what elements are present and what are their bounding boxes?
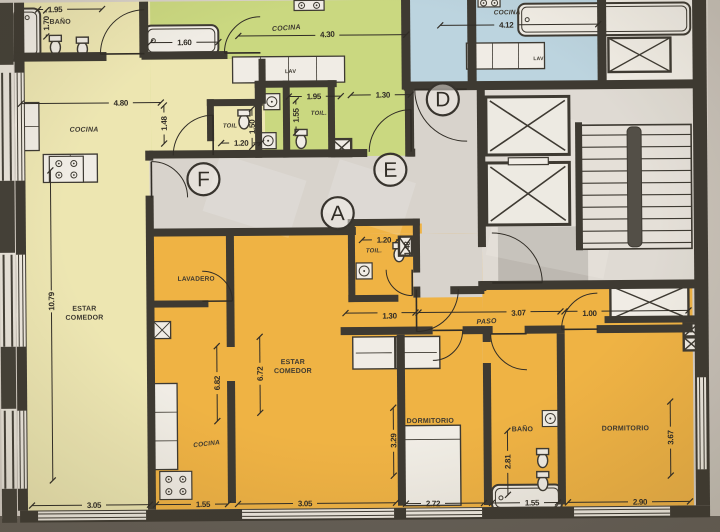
window (16, 255, 26, 347)
balcony-wall-bar (1, 347, 16, 409)
room-label: ESTAR (72, 306, 96, 313)
dimension-label: 1.20 (234, 139, 249, 148)
plan-sheet: 1.951.701.604.801.484.301.951.551.501.20… (0, 0, 710, 523)
stair-stringer (627, 127, 642, 247)
washbasin-drain (267, 140, 269, 142)
dimension-label: 2.90 (633, 498, 648, 507)
wall (328, 80, 336, 157)
wall (575, 122, 583, 250)
wall (597, 324, 693, 333)
burner-dot (316, 4, 318, 6)
toilet (296, 134, 306, 148)
wall (480, 279, 696, 290)
window (17, 411, 27, 489)
wall (597, 0, 607, 84)
wall (255, 81, 263, 158)
burner-dot (168, 478, 170, 480)
wall (348, 295, 398, 302)
burner-dot (58, 163, 60, 165)
wall (12, 52, 106, 62)
room-label: DORMITORIO (407, 418, 455, 425)
dimension-label: 3.29 (389, 433, 398, 448)
toilet (50, 40, 60, 54)
room-label: TOIL (223, 123, 238, 129)
dim-line (601, 310, 688, 311)
kitchen-counter (153, 383, 178, 469)
balcony-wall-bar (0, 3, 14, 65)
burner-dot (168, 491, 170, 493)
window (38, 511, 146, 521)
wall (141, 51, 227, 60)
burner-dot (73, 163, 75, 165)
toilet-tank (238, 110, 250, 116)
window-mullion (20, 411, 21, 489)
floor-plan: 1.951.701.604.801.484.301.951.551.501.20… (0, 0, 720, 532)
bidet (538, 477, 548, 491)
dimension-label: 1.55 (525, 498, 540, 507)
wall (557, 333, 566, 504)
dim-line (21, 103, 109, 104)
floorplan-photo: 1.951.701.604.801.484.301.951.551.501.20… (0, 0, 720, 532)
wall (463, 326, 493, 334)
dim-line (518, 24, 598, 25)
wall (397, 335, 406, 506)
room-label: COCINA (494, 9, 521, 16)
unit-f-main (16, 2, 154, 511)
stove-burners-icon (160, 471, 192, 499)
balcony-rail (10, 73, 11, 181)
wall (348, 219, 420, 227)
wall (152, 300, 208, 307)
bed (404, 425, 461, 505)
burner-dot (58, 174, 60, 176)
room-label: TOIL. (311, 111, 327, 117)
burner-dot (73, 174, 75, 176)
wall (341, 326, 433, 335)
burner-dot (301, 5, 303, 7)
stove-burners-icon (49, 156, 83, 182)
wall (483, 334, 491, 342)
dimension-label: 4.12 (499, 21, 514, 30)
unit-letter-E: E (383, 159, 397, 182)
unit-letter-A: A (331, 202, 345, 225)
wall (207, 99, 263, 106)
wall (483, 363, 492, 505)
dimension-label: 6.72 (256, 366, 265, 381)
washbasin-drain (363, 270, 365, 272)
elevator-door (508, 158, 548, 165)
toilet (538, 454, 548, 468)
dimension-label: 1.30 (376, 91, 391, 100)
dimension-label: 1.55 (196, 500, 211, 509)
dimension-label: 1.95 (48, 5, 63, 14)
wall (401, 0, 411, 90)
wall (255, 80, 337, 88)
balcony-rail (2, 73, 3, 181)
dim-line (238, 35, 315, 36)
dimension-label: 1.95 (307, 92, 322, 101)
wall (467, 0, 477, 85)
washbasin-drain (549, 418, 551, 420)
paper-edge-right (708, 0, 720, 532)
bidet-tank (537, 472, 549, 478)
wall (227, 381, 236, 503)
balcony-rail (13, 411, 14, 489)
room-label: LAV (533, 56, 544, 62)
dimension-label: 3.05 (87, 501, 102, 510)
dim-line (317, 503, 396, 504)
window-mullion (406, 511, 482, 512)
balcony-rail (12, 255, 13, 347)
washbasin-drain (271, 101, 273, 103)
window-mullion (24, 411, 25, 489)
room-label: BAÑO (49, 17, 71, 26)
wall (525, 325, 565, 333)
dimension-label: 1.00 (582, 309, 597, 318)
dim-line (339, 35, 406, 36)
unit-letter-D: D (435, 88, 450, 111)
wall (413, 219, 420, 273)
balcony-wall-bar (2, 489, 17, 523)
burner-dot (182, 478, 184, 480)
dimension-label: 4.30 (320, 30, 336, 40)
wall (145, 151, 153, 161)
dimension-label: 3.05 (298, 499, 313, 508)
wall (348, 219, 356, 302)
dimension-label: 2.81 (503, 454, 512, 469)
balcony-wall-bar (0, 181, 15, 253)
wall (150, 227, 356, 237)
dimension-label: 1.48 (160, 115, 169, 130)
room-label: COMEDOR (66, 315, 104, 322)
dim-line (418, 312, 506, 313)
window (406, 508, 482, 518)
wall (477, 87, 486, 247)
burner-dot (483, 2, 485, 4)
unit-letter-F: F (197, 168, 210, 191)
dimension-label: 10.79 (47, 291, 56, 310)
burner-dot (494, 2, 496, 4)
room-label: TOIL. (366, 248, 382, 254)
room-label: BAÑO (512, 424, 534, 433)
dimension-label: 1.60 (177, 38, 192, 47)
dimension-label: 3.67 (666, 429, 675, 444)
wall (605, 315, 697, 323)
dimension-label: 6.82 (213, 375, 222, 390)
room-label: PASO (476, 318, 497, 326)
window-mullion (406, 515, 482, 516)
burner-dot (182, 491, 184, 493)
dimension-label: 1.55 (292, 107, 301, 122)
window (242, 509, 394, 519)
dimension-label: 4.80 (114, 99, 129, 108)
toilet-tank (537, 449, 549, 455)
toilet-tank (49, 35, 61, 41)
room-label: COMEDOR (274, 368, 312, 375)
room-label: ESTAR (281, 359, 305, 366)
room-label: DORMITORIO (602, 425, 650, 432)
wall (405, 88, 415, 157)
dimension-label: 3.07 (511, 308, 527, 318)
wall (283, 81, 291, 158)
balcony-rail (4, 255, 5, 347)
room-label: COCINA (70, 127, 99, 134)
dimension-label: 1.30 (382, 312, 397, 321)
window (697, 377, 707, 469)
window (574, 507, 670, 517)
window (15, 73, 25, 181)
dimension-label: 2.72 (426, 499, 441, 508)
room-label: LAVADERO (178, 276, 215, 283)
dimension-label: 1.50 (248, 119, 257, 134)
dimension-label: 1.48 (403, 241, 412, 256)
balcony-rail (5, 411, 6, 489)
dimension-label: 1.20 (377, 236, 392, 245)
bidet-tank (76, 37, 88, 43)
room-label: LAV (285, 69, 296, 75)
